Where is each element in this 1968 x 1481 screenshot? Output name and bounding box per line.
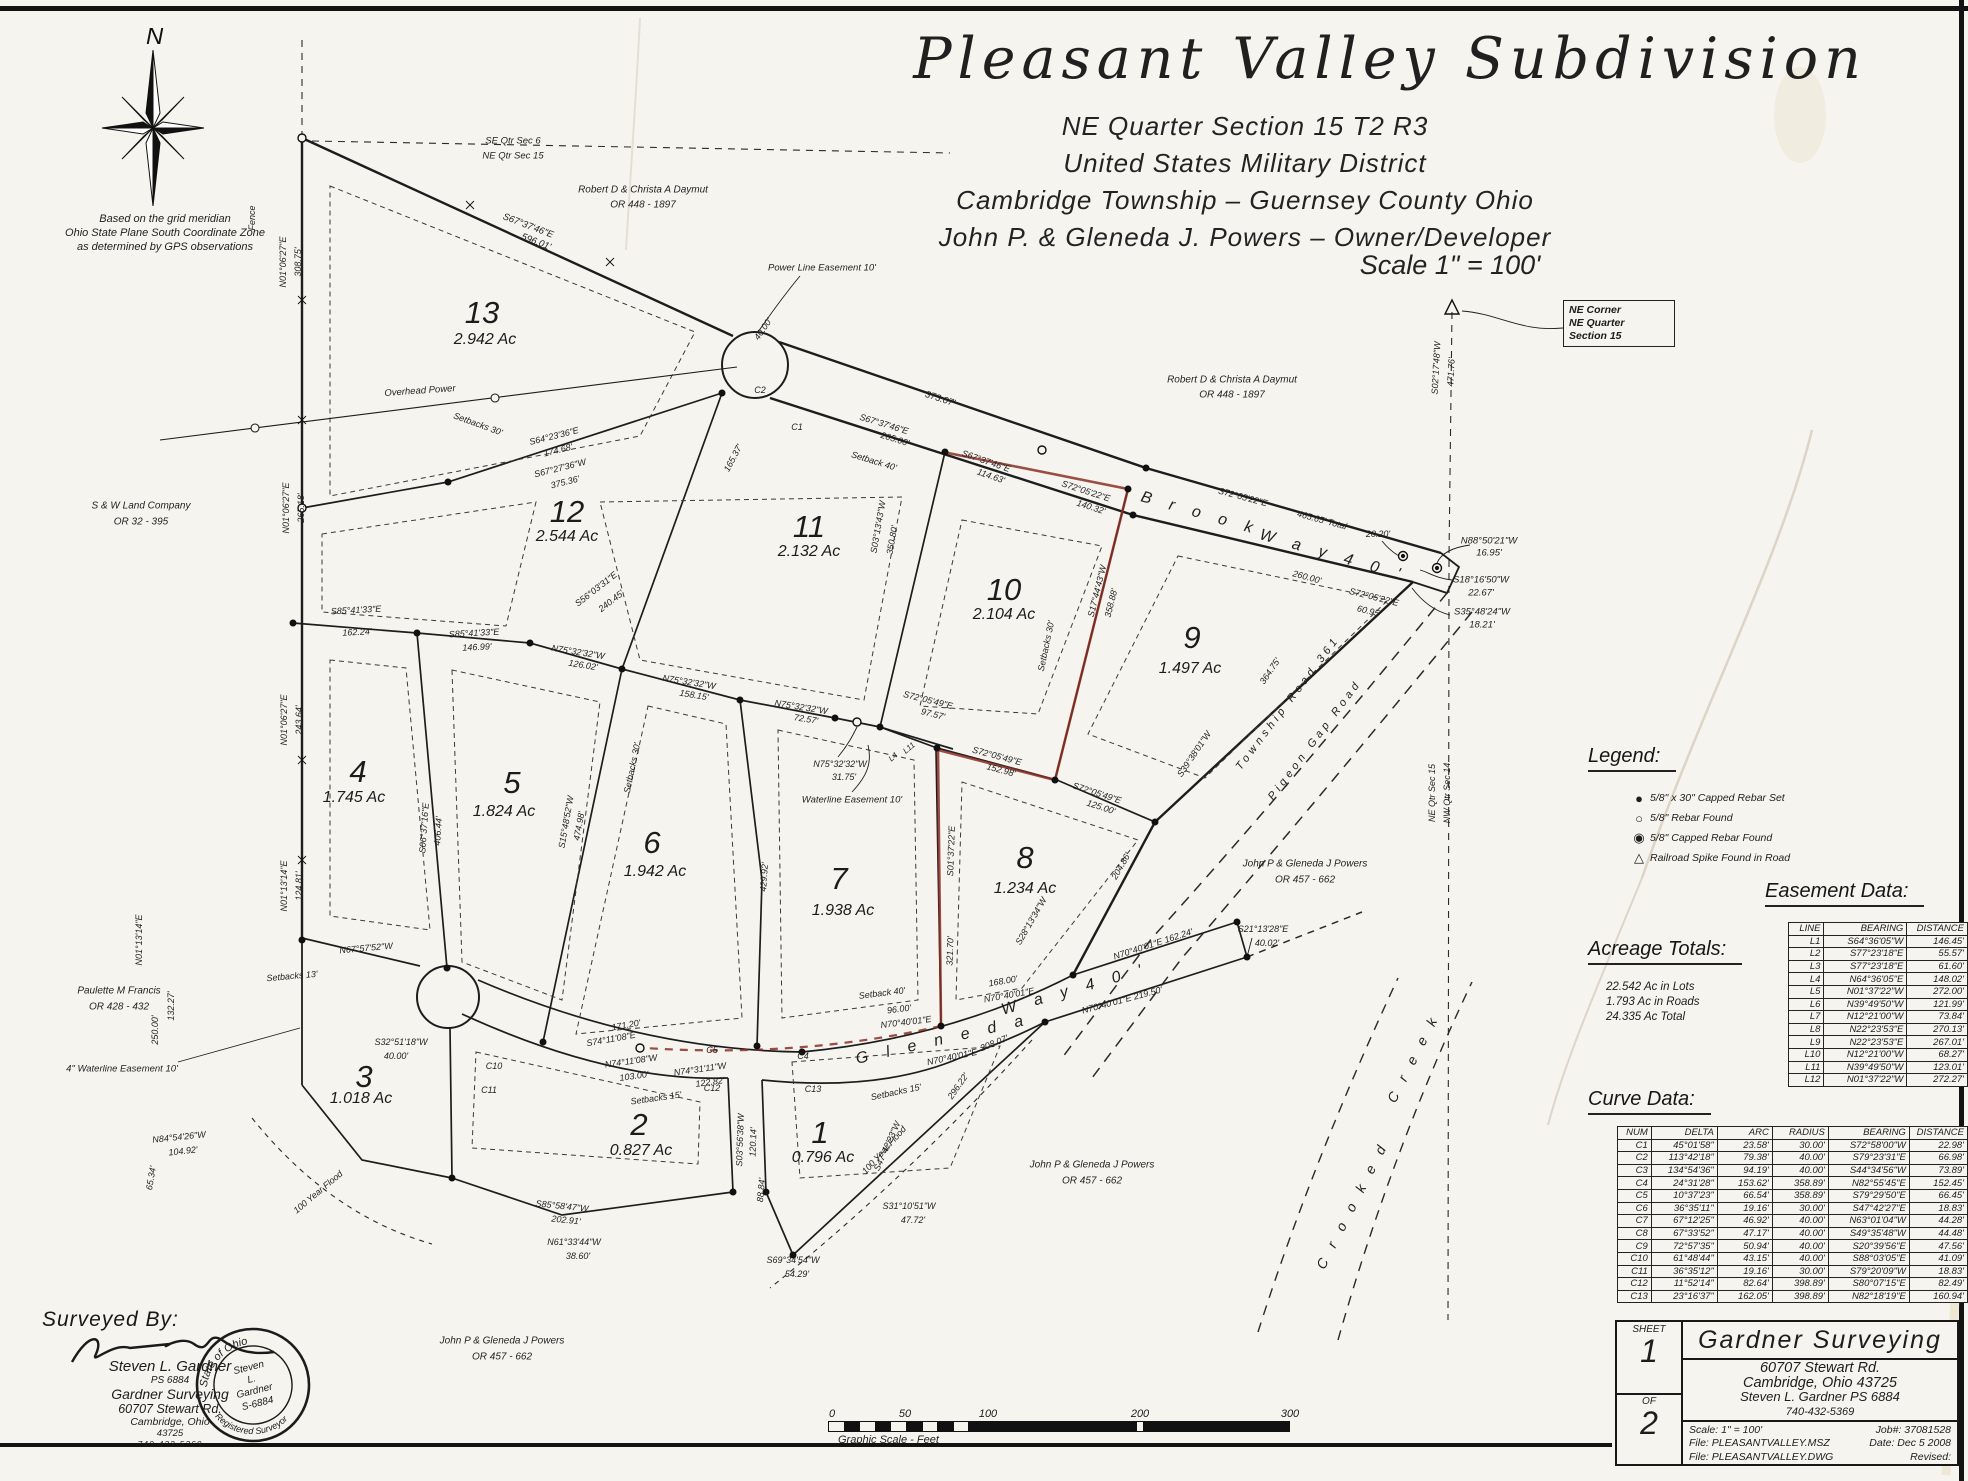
easement-row-cell: L1	[1789, 935, 1824, 948]
map-label: 104.92'	[168, 1144, 198, 1157]
meta-revised: Revised:	[1910, 1451, 1951, 1465]
easement-row-cell: 123.01'	[1907, 1061, 1968, 1074]
curve-row-cell: 61°48'44"	[1651, 1252, 1717, 1265]
legend-item: ●5/8" x 30" Capped Rebar Set	[1628, 788, 1790, 808]
curve-row: C767°12'25"46.92'40.00'N63°01'04"W44.28'	[1618, 1215, 1968, 1228]
legend-item-label: 5/8" Rebar Found	[1650, 812, 1733, 824]
easement-row-cell: 61.60'	[1907, 960, 1968, 973]
map-label: OR 448 - 1897	[610, 200, 676, 211]
map-label: NW Qtr Sec 14	[1442, 763, 1452, 824]
easement-row-cell: L2	[1789, 948, 1824, 961]
curve-row-cell: 43.15'	[1717, 1252, 1772, 1265]
map-label: S67°27'36"W	[533, 457, 587, 480]
curve-row-cell: 73.89'	[1909, 1164, 1967, 1177]
curve-row-cell: C12	[1618, 1278, 1652, 1291]
map-label: 146.99'	[462, 641, 492, 653]
meta-file-msz: File: PLEASANTVALLEY.MSZ	[1689, 1437, 1830, 1451]
curve-row-cell: 40.00'	[1772, 1152, 1828, 1165]
curve-row: C636°35'11"19.16'30.00'S47°42'27"E18.83'	[1618, 1202, 1968, 1215]
curve-row-cell: 40.00'	[1772, 1252, 1828, 1265]
curve-row-cell: 79.38'	[1717, 1152, 1772, 1165]
map-label: 308.75'	[293, 247, 303, 276]
map-label: S85°41'33"E	[330, 604, 381, 617]
curve-row-cell: 23.58'	[1717, 1139, 1772, 1152]
easement-row-cell: N01°37'22"W	[1824, 1074, 1907, 1087]
map-label: 471.76'	[1445, 357, 1457, 387]
curve-row-cell: S49°35'48"W	[1828, 1227, 1909, 1240]
easement-row-cell: N22°23'53"E	[1824, 1036, 1907, 1049]
map-label: C5	[706, 1045, 718, 1055]
map-label: OR 428 - 432	[89, 1002, 149, 1013]
curve-row-cell: 36°35'12"	[1651, 1265, 1717, 1278]
curve-row-cell: 398.89'	[1772, 1278, 1828, 1291]
map-label: N74°11'08"W	[604, 1052, 658, 1069]
easement-row-cell: L4	[1789, 973, 1824, 986]
curve-row-cell: 134°54'36"	[1651, 1164, 1717, 1177]
easement-row: L12N01°37'22"W272.27'	[1789, 1074, 1968, 1087]
map-label: 38.60'	[566, 1251, 590, 1261]
map-label: N84°54'26"W	[152, 1129, 206, 1145]
curve-row-cell: 66.54'	[1717, 1189, 1772, 1202]
map-label: 162.24'	[342, 626, 372, 638]
map-label: 265.18'	[296, 493, 306, 522]
map-label: L4	[887, 751, 900, 764]
map-label: N70°40'01"E	[880, 1014, 932, 1030]
map-label: C10	[486, 1061, 503, 1071]
triangle-icon: △	[1628, 850, 1650, 866]
map-label: S72°05'22"E	[1217, 486, 1268, 509]
meta-date: Date: Dec 5 2008	[1869, 1437, 1951, 1451]
curve-row-cell: 66.45'	[1909, 1189, 1967, 1202]
curve-col: ARC	[1717, 1127, 1772, 1140]
company-address: 60707 Stewart Rd. Cambridge, Ohio 43725 …	[1683, 1360, 1957, 1422]
curve-row-cell: 47.17'	[1717, 1227, 1772, 1240]
easement-row-cell: N01°37'22"W	[1824, 985, 1907, 998]
scale-caption: Graphic Scale - Feet	[838, 1434, 1298, 1446]
curve-row-cell: 24°31'28"	[1651, 1177, 1717, 1190]
curve-row-cell: S20°39'56"E	[1828, 1240, 1909, 1253]
map-label: 132.27'	[166, 991, 176, 1020]
curve-row: C3134°54'36"94.19'40.00'S44°34'56"W73.89…	[1618, 1164, 1968, 1177]
curve-row: C867°33'52"47.17'40.00'S49°35'48"W44.48'	[1618, 1227, 1968, 1240]
map-label: 18.21'	[1469, 620, 1495, 631]
map-label: 375.36'	[550, 474, 581, 491]
curve-row: C1136°35'12"19.16'30.00'S79°20'09"W18.83…	[1618, 1265, 1968, 1278]
scale-tick: 50	[899, 1408, 911, 1420]
map-label: C1	[791, 422, 803, 432]
map-label: N01°06'27"E	[281, 482, 291, 533]
sheet-title-block: SHEET 1 OF 2 Gardner Surveying 60707 Ste…	[1615, 1320, 1959, 1466]
map-label: S15°48'52"W	[556, 795, 575, 849]
map-label: Setback 40'	[850, 449, 898, 472]
curve-row-cell: C1	[1618, 1139, 1652, 1152]
easement-row-cell: L11	[1789, 1061, 1824, 1074]
curve-row-cell: 358.89'	[1772, 1177, 1828, 1190]
legend-item-label: Railroad Spike Found in Road	[1650, 852, 1790, 864]
map-label: S21°13'28"E	[1238, 924, 1289, 934]
map-label: Setbacks 15'	[870, 1082, 922, 1102]
curve-row-cell: 47.56'	[1909, 1240, 1967, 1253]
legend-item-label: 5/8" x 30" Capped Rebar Set	[1650, 792, 1785, 804]
curve-row-cell: C10	[1618, 1252, 1652, 1265]
easement-row-cell: 272.27'	[1907, 1074, 1968, 1087]
map-label: 373.07'	[924, 389, 957, 409]
map-label: 40.00'	[384, 1051, 408, 1061]
map-label: S69°34'54"W	[766, 1255, 819, 1265]
curve-row-cell: C3	[1618, 1164, 1652, 1177]
easement-row: L11N39°49'50"W123.01'	[1789, 1061, 1968, 1074]
plat-sheet: N Pleasant Valley Subdivision NE Quarter…	[0, 0, 1968, 1481]
easement-row-cell: N39°49'50"W	[1824, 1061, 1907, 1074]
curve-row-cell: 82.64'	[1717, 1278, 1772, 1291]
map-label: 40.00'	[752, 316, 774, 342]
map-label: 465.65' Total	[1296, 509, 1348, 532]
easement-row-cell: L8	[1789, 1023, 1824, 1036]
map-label: N70°40'01"E 162.24'	[1112, 926, 1194, 961]
surveyor-panel: Gardner Surveying 60707 Stewart Rd. Camb…	[1683, 1322, 1957, 1464]
map-label: C11	[481, 1085, 497, 1095]
map-label: Setbacks 30'	[1036, 620, 1056, 672]
map-label: 88.84'	[755, 1177, 767, 1202]
map-label: 165.37'	[722, 443, 745, 474]
graphic-scale: 0 50 100 200 300 Graphic Scale - Feet	[828, 1408, 1298, 1446]
easement-row: L10N12°21'00"W68.27'	[1789, 1048, 1968, 1061]
map-label: S02°17'48"W	[1430, 341, 1443, 394]
map-label: S06°37'16"E	[417, 802, 431, 853]
easement-row-cell: N39°49'50"W	[1824, 998, 1907, 1011]
map-label: S28°13'34"W	[1013, 896, 1048, 947]
map-label: 429.92'	[758, 862, 770, 892]
curve-row-cell: C5	[1618, 1189, 1652, 1202]
easement-col: DISTANCE	[1907, 923, 1968, 936]
map-label: S03°56'38"W	[734, 1113, 746, 1166]
map-label: 240.45'	[596, 588, 625, 614]
curve-row-cell: 30.00'	[1772, 1202, 1828, 1215]
easement-row: L2S77°23'18"E55.57'	[1789, 948, 1968, 961]
map-label: 31.75'	[832, 772, 856, 782]
map-label: 4" Waterline Easement 10'	[66, 1064, 178, 1075]
map-label: 296.22'	[946, 1071, 971, 1101]
filled-circle-icon: ●	[1628, 791, 1650, 806]
curve-row-cell: C9	[1618, 1240, 1652, 1253]
curve-row-cell: S72°58'00"W	[1828, 1139, 1909, 1152]
graphic-scale-ticks: 0 50 100 200 300	[828, 1408, 1298, 1421]
easement-row-cell: 267.01'	[1907, 1036, 1968, 1049]
map-label: 364.75'	[1258, 656, 1283, 686]
map-label: OR 32 - 395	[114, 517, 168, 528]
map-label: Robert D & Christa A Daymut	[1167, 375, 1297, 386]
easement-row-cell: 148.02'	[1907, 973, 1968, 986]
legend-items: ●5/8" x 30" Capped Rebar Set○5/8" Rebar …	[1628, 788, 1790, 868]
map-label: S32°51'18"W	[374, 1037, 427, 1047]
map-label: Township Road 361	[1234, 634, 1343, 773]
scale-tick: 300	[1281, 1408, 1299, 1420]
curve-row-cell: 45°01'58"	[1651, 1139, 1717, 1152]
easement-row: L7N12°21'00"W73.84'	[1789, 1011, 1968, 1024]
map-label: 40.02'	[1255, 938, 1279, 948]
map-label: NE Qtr Sec 15	[1427, 764, 1437, 822]
curve-row-cell: 67°12'25"	[1651, 1215, 1717, 1228]
easement-row-cell: 272.00'	[1907, 985, 1968, 998]
easement-row: L8N22°23'53"E270.13'	[1789, 1023, 1968, 1036]
map-label: Overhead Power	[384, 383, 456, 399]
curve-col: NUM	[1618, 1127, 1652, 1140]
map-label: 321.70'	[944, 936, 955, 966]
curve-row-cell: 153.62'	[1717, 1177, 1772, 1190]
map-label: Setback 40'	[858, 985, 906, 1001]
curve-row-cell: S79°29'50"E	[1828, 1189, 1909, 1202]
map-label: S74°11'08"E	[586, 1030, 637, 1049]
map-label: John P & Gleneda J Powers	[440, 1336, 565, 1347]
curve-row-cell: 36°35'11"	[1651, 1202, 1717, 1215]
map-label: 174.68'	[543, 442, 574, 459]
map-label: C2	[754, 385, 766, 395]
curve-row-cell: C2	[1618, 1152, 1652, 1165]
easement-row-cell: 55.57'	[1907, 948, 1968, 961]
curve-row-cell: 19.16'	[1717, 1202, 1772, 1215]
easement-row-cell: N12°21'00"W	[1824, 1011, 1907, 1024]
map-label: S64°23'36"E	[528, 425, 579, 447]
map-label: 65.34'	[144, 1165, 158, 1191]
map-label: C13	[805, 1084, 822, 1094]
easement-row: L5N01°37'22"W272.00'	[1789, 985, 1968, 998]
easement-row-cell: S77°23'18"E	[1824, 948, 1907, 961]
curve-row-cell: 67°33'52"	[1651, 1227, 1717, 1240]
map-label: N01°13'14"E	[134, 914, 144, 965]
easement-row-cell: L10	[1789, 1048, 1824, 1061]
curve-row-cell: 18.83'	[1909, 1202, 1967, 1215]
easement-col: LINE	[1789, 923, 1824, 936]
legend-item: ◉5/8" Capped Rebar Found	[1628, 828, 1790, 848]
map-label: Pigeon Gap Road	[1266, 678, 1364, 803]
meta-scale: Scale: 1" = 100'	[1689, 1424, 1762, 1438]
map-label: Setbacks 30'	[622, 742, 642, 794]
map-label: Waterline Easement 10'	[802, 795, 902, 806]
curve-row: C1211°52'14"82.64'398.89'S80°07'15"E82.4…	[1618, 1278, 1968, 1291]
circled-dot-icon: ◉	[1628, 830, 1650, 846]
curve-row-cell: 46.92'	[1717, 1215, 1772, 1228]
legend-heading: Legend:	[1588, 745, 1676, 772]
sheet-total: 2	[1617, 1407, 1681, 1439]
map-label: Robert D & Christa A Daymut	[578, 185, 708, 196]
scale-tick: 200	[1131, 1408, 1149, 1420]
curve-col: DISTANCE	[1909, 1127, 1967, 1140]
acreage-line: 24.335 Ac Total	[1606, 1010, 1700, 1025]
curve-row-cell: S44°34'56"W	[1828, 1164, 1909, 1177]
map-label: John P & Gleneda J Powers	[1030, 1160, 1155, 1171]
map-label: 350.80'	[885, 525, 900, 556]
curve-row-cell: 398.89'	[1772, 1290, 1828, 1303]
curve-row: C510°37'23"66.54'358.89'S79°29'50"E66.45…	[1618, 1189, 1968, 1202]
acreage-totals-heading: Acreage Totals:	[1588, 938, 1742, 965]
map-label: 120.14'	[747, 1127, 758, 1157]
map-label: N75°32'32"W	[813, 759, 867, 769]
sheet-number-panel: SHEET 1 OF 2	[1617, 1322, 1683, 1464]
curve-col: BEARING	[1828, 1127, 1909, 1140]
map-label: 250.00'	[150, 1015, 160, 1044]
map-label: OR 457 - 662	[1062, 1176, 1122, 1187]
easement-row-cell: L3	[1789, 960, 1824, 973]
easement-row: L4N64°36'05"E148.02'	[1789, 973, 1968, 986]
map-label: C r e e k	[1384, 1011, 1443, 1105]
curve-row-cell: 44.48'	[1909, 1227, 1967, 1240]
map-label: 168.00'	[988, 974, 1019, 989]
easement-row-cell: N64°36'05"E	[1824, 973, 1907, 986]
curve-row-cell: 22.98'	[1909, 1139, 1967, 1152]
map-label: S72°05'22"E	[1348, 586, 1399, 608]
curve-row-cell: N63°01'04"W	[1828, 1215, 1909, 1228]
map-label: 103.00'	[619, 1069, 649, 1083]
map-label: S85°41'33"E	[448, 627, 499, 640]
map-label: 474.98'	[572, 811, 587, 842]
map-label: Setbacks 30'	[452, 411, 504, 438]
curve-row-cell: C4	[1618, 1177, 1652, 1190]
curve-row: C2113°42'18"79.38'40.00'S79°23'31"E66.98…	[1618, 1152, 1968, 1165]
legend-item: ○5/8" Rebar Found	[1628, 808, 1790, 828]
curve-row: C1061°48'44"43.15'40.00'S88°03'05"E41.09…	[1618, 1252, 1968, 1265]
acreage-line: 22.542 Ac in Lots	[1606, 980, 1700, 995]
map-label: 358.88'	[1103, 588, 1120, 619]
map-label: N88°50'21"W	[1461, 536, 1518, 547]
curve-data-table: NUM DELTA ARC RADIUS BEARING DISTANCE C1…	[1617, 1126, 1968, 1303]
curve-row-cell: 30.00'	[1772, 1139, 1828, 1152]
curve-row-cell: N82°18'19"E	[1828, 1290, 1909, 1303]
curve-row-cell: S88°03'05"E	[1828, 1252, 1909, 1265]
drawing-meta: Scale: 1" = 100'Job#: 37081528 File: PLE…	[1683, 1422, 1957, 1465]
curve-row-cell: 50.94'	[1717, 1240, 1772, 1253]
map-label: John P & Gleneda J Powers	[1243, 859, 1368, 870]
curve-row-cell: N82°55'45"E	[1828, 1177, 1909, 1190]
curve-row-cell: 66.98'	[1909, 1152, 1967, 1165]
easement-row: L1S64°36'05"W146.45'	[1789, 935, 1968, 948]
curve-row-cell: 358.89'	[1772, 1189, 1828, 1202]
map-label: S31°10'51"W	[882, 1201, 935, 1211]
curve-row-cell: S47°42'27"E	[1828, 1202, 1909, 1215]
map-label: 243.64'	[294, 705, 304, 734]
map-label: Power Line Easement 10'	[768, 263, 876, 274]
map-label: 47.72'	[901, 1215, 925, 1225]
map-label: Fence	[247, 205, 257, 230]
map-label: C4	[797, 1051, 809, 1061]
map-label: N01°06'27"E	[278, 236, 288, 287]
easement-col: BEARING	[1824, 923, 1907, 936]
curve-row: C424°31'28"153.62'358.89'N82°55'45"E152.…	[1618, 1177, 1968, 1190]
map-label: Setbacks 15'	[630, 1089, 682, 1106]
map-label: 202.91'	[551, 1213, 581, 1226]
curve-row: C1323°16'37"162.05'398.89'N82°18'19"E160…	[1618, 1290, 1968, 1303]
map-label: S & W Land Company	[92, 501, 191, 512]
map-label: 20.20'	[1366, 529, 1390, 539]
company-name: Gardner Surveying	[1683, 1322, 1957, 1360]
map-label: 126.02'	[568, 658, 598, 672]
easement-row-cell: 270.13'	[1907, 1023, 1968, 1036]
curve-col: DELTA	[1651, 1127, 1717, 1140]
easement-row-cell: 146.45'	[1907, 935, 1968, 948]
curve-row-cell: 160.94'	[1909, 1290, 1967, 1303]
map-label: 16.95'	[1476, 548, 1502, 559]
map-label: N01°06'27"E	[279, 694, 289, 745]
curve-row-cell: 94.19'	[1717, 1164, 1772, 1177]
map-label: 100 Year Flood	[291, 1169, 344, 1216]
map-label: 22.67'	[1468, 588, 1494, 599]
map-label: S03°13'43"W	[868, 500, 887, 554]
curve-row-cell: 30.00'	[1772, 1265, 1828, 1278]
legend-item: △Railroad Spike Found in Road	[1628, 848, 1790, 868]
curve-data-heading: Curve Data:	[1588, 1088, 1711, 1115]
curve-row-cell: 23°16'37"	[1651, 1290, 1717, 1303]
curve-row-cell: 113°42'18"	[1651, 1152, 1717, 1165]
easement-row-cell: L5	[1789, 985, 1824, 998]
curve-col: RADIUS	[1772, 1127, 1828, 1140]
legend-item-label: 5/8" Capped Rebar Found	[1650, 832, 1772, 844]
address-line: 60707 Stewart Rd.	[1683, 1361, 1957, 1376]
curve-row-cell: S79°20'09"W	[1828, 1265, 1909, 1278]
curve-row-cell: C7	[1618, 1215, 1652, 1228]
easement-data-heading: Easement Data:	[1765, 880, 1924, 907]
easement-row-cell: 68.27'	[1907, 1048, 1968, 1061]
map-label: OR 457 - 662	[472, 1352, 532, 1363]
curve-row-cell: C8	[1618, 1227, 1652, 1240]
map-label: 158.15'	[679, 688, 709, 702]
map-label: N01°13'14"E	[279, 860, 289, 911]
curve-row-cell: 40.00'	[1772, 1164, 1828, 1177]
meta-job: Job#: 37081528	[1876, 1424, 1951, 1438]
map-label: 204.86'	[1109, 851, 1132, 881]
easement-row-cell: L6	[1789, 998, 1824, 1011]
easement-row-cell: N12°21'00"W	[1824, 1048, 1907, 1061]
map-label: S35°48'24"W	[1454, 607, 1510, 618]
map-label: OR 457 - 662	[1275, 875, 1335, 886]
seal-center-line: L.	[246, 1373, 257, 1386]
address-line: Steven L. Gardner PS 6884	[1683, 1390, 1957, 1405]
map-label: NE Qtr Sec 15	[482, 151, 543, 162]
map-label: 60.95'	[1356, 603, 1382, 619]
map-label: S85°58'47"W	[535, 1198, 589, 1213]
curve-row-cell: 162.05'	[1717, 1290, 1772, 1303]
map-label: 260.00'	[1292, 568, 1323, 585]
easement-row: L3S77°23'18"E61.60'	[1789, 960, 1968, 973]
curve-row-cell: 44.28'	[1909, 1215, 1967, 1228]
map-label: S18°16'50"W	[1453, 575, 1509, 586]
map-label: S39°38'01"W	[1175, 729, 1213, 779]
scale-tick: 100	[979, 1408, 997, 1420]
map-label: OR 448 - 1897	[1199, 390, 1265, 401]
easement-row-cell: 121.99'	[1907, 998, 1968, 1011]
curve-row-cell: 72°57'35"	[1651, 1240, 1717, 1253]
easement-row-cell: L9	[1789, 1036, 1824, 1049]
map-label: S01°37'22"E	[945, 826, 957, 877]
easement-row-cell: L12	[1789, 1074, 1824, 1087]
easement-row: L9N22°23'53"E267.01'	[1789, 1036, 1968, 1049]
map-label: Paulette M Francis	[77, 986, 160, 997]
curve-row-cell: 18.83'	[1909, 1265, 1967, 1278]
curve-row-cell: C13	[1618, 1290, 1652, 1303]
easement-row-cell: N22°23'53"E	[1824, 1023, 1907, 1036]
map-label: 122.82'	[695, 1075, 725, 1089]
map-label: SE Qtr Sec 6	[485, 136, 540, 147]
map-label: L11	[901, 740, 917, 755]
curve-row-cell: C11	[1618, 1265, 1652, 1278]
scale-tick: 0	[829, 1408, 835, 1420]
curve-row-cell: S79°23'31"E	[1828, 1152, 1909, 1165]
map-label: S47°42'23"W	[872, 1120, 903, 1173]
curve-row-cell: 40.00'	[1772, 1227, 1828, 1240]
curve-row-cell: 82.49'	[1909, 1278, 1967, 1291]
curve-row-cell: 19.16'	[1717, 1265, 1772, 1278]
curve-row-cell: 152.45'	[1909, 1177, 1967, 1190]
address-line: Cambridge, Ohio 43725	[1683, 1376, 1957, 1391]
curve-row-cell: 10°37'23"	[1651, 1189, 1717, 1202]
